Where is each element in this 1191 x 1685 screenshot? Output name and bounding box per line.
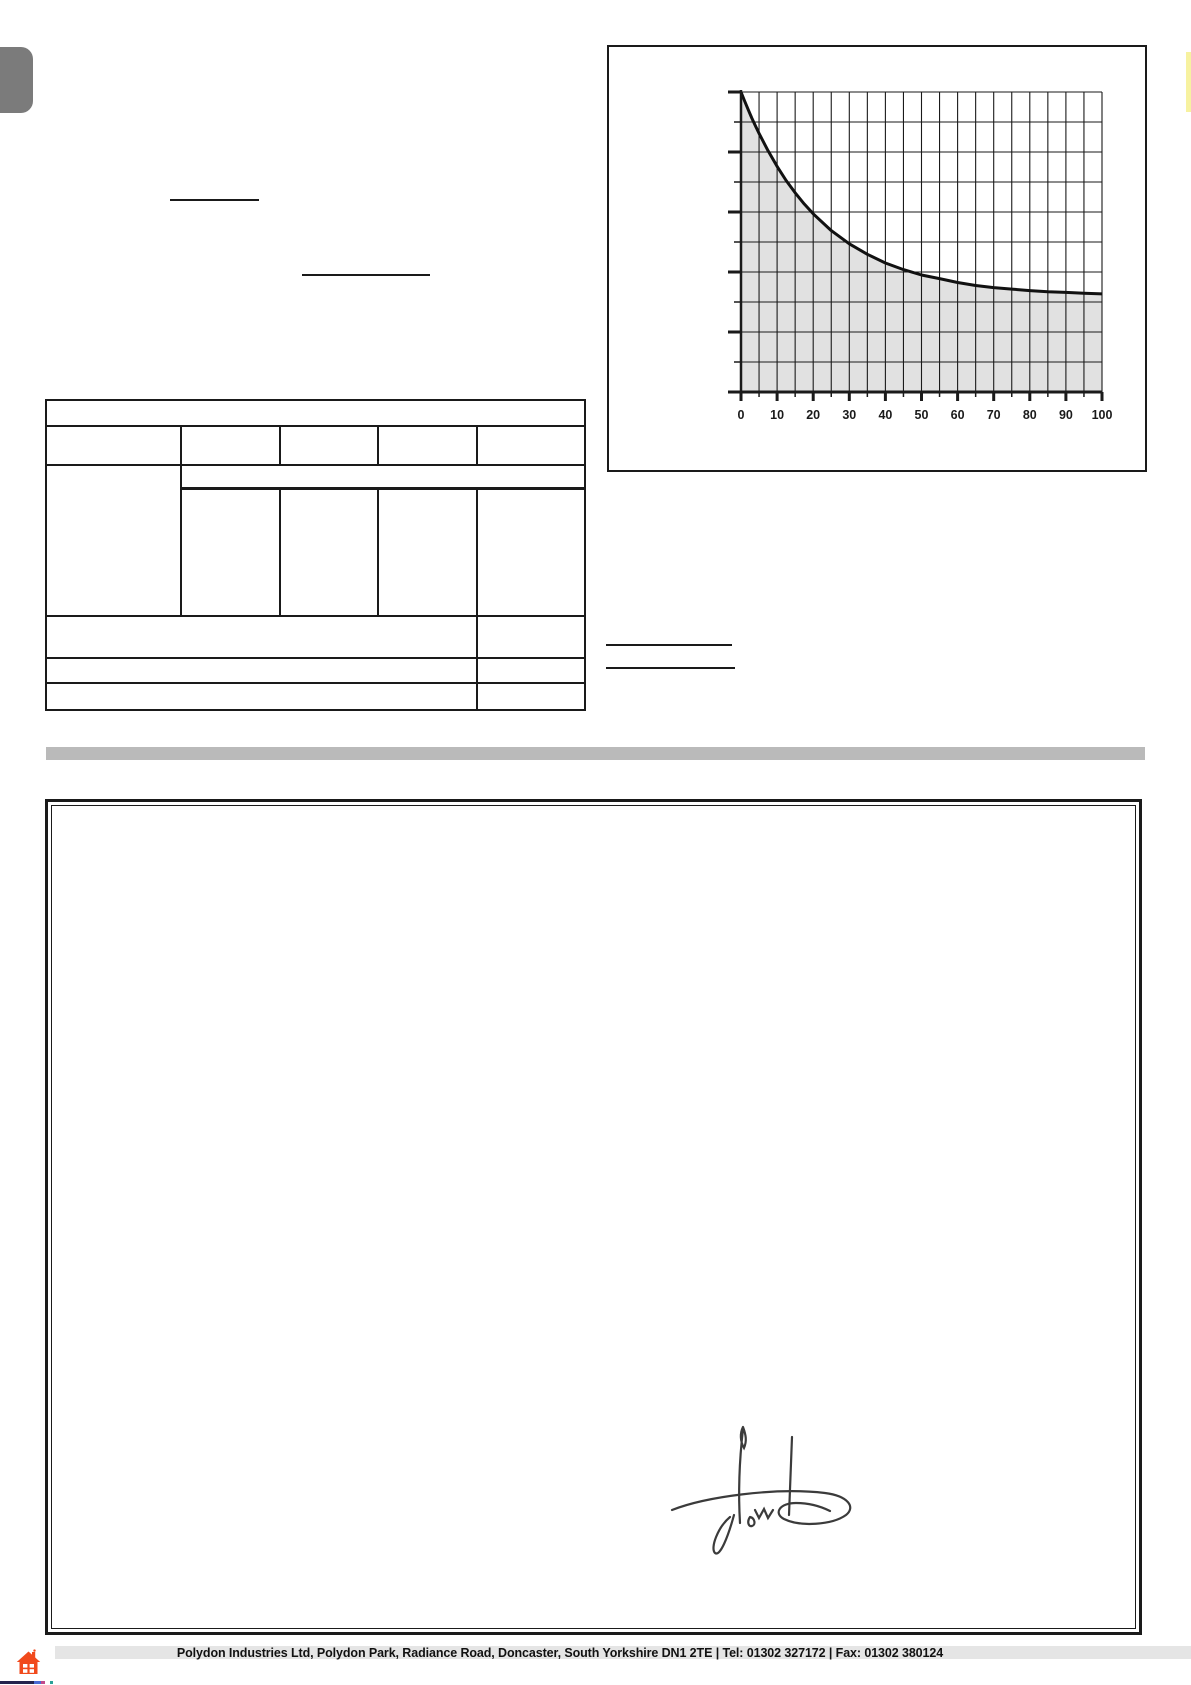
scan-artifact-strip — [0, 1681, 34, 1684]
certificate-box-inner-border — [51, 805, 1136, 1629]
footer-tel-label: Tel: — [722, 1646, 743, 1660]
x-axis-tick-label: 50 — [915, 408, 929, 422]
footer-address: Polydon Industries Ltd, Polydon Park, Ra… — [177, 1646, 712, 1660]
fill-in-line-4 — [606, 667, 735, 669]
scan-artifact-strip — [50, 1681, 53, 1684]
table-grid-line — [377, 425, 379, 464]
signature-scribble — [660, 1415, 870, 1580]
scan-artifact-strip — [34, 1681, 41, 1684]
scan-artifact-strip — [41, 1681, 45, 1684]
decay-chart: 0102030405060708090100 — [609, 47, 1141, 466]
table-grid-line — [476, 425, 478, 464]
footer-tel-number: 01302 327172 — [747, 1646, 826, 1660]
table-grid-line — [180, 487, 584, 490]
footer-separator: | — [829, 1646, 832, 1660]
table-grid-line — [279, 487, 281, 615]
table-grid-line — [279, 425, 281, 464]
chart-panel: 0102030405060708090100 — [607, 45, 1147, 472]
x-axis-tick-label: 10 — [770, 408, 784, 422]
x-axis-tick-label: 100 — [1092, 408, 1113, 422]
footer-fax-label: Fax: — [836, 1646, 861, 1660]
section-divider-bar — [46, 747, 1145, 760]
x-axis-tick-label: 0 — [738, 408, 745, 422]
footer-company-line: Polydon Industries Ltd, Polydon Park, Ra… — [0, 1646, 1120, 1660]
fill-in-line-2 — [302, 274, 430, 276]
table-grid-line — [47, 464, 584, 466]
spec-table — [45, 399, 586, 711]
fill-in-line-1 — [170, 199, 259, 201]
section-side-tab — [0, 47, 33, 113]
x-axis-tick-label: 90 — [1059, 408, 1073, 422]
table-grid-line — [47, 657, 584, 659]
table-grid-line — [180, 425, 182, 615]
x-axis-tick-label: 20 — [806, 408, 820, 422]
x-axis-tick-label: 30 — [842, 408, 856, 422]
table-grid-line — [476, 487, 478, 709]
scan-artifact-yellow-strip — [1186, 52, 1191, 112]
certificate-box — [45, 799, 1142, 1635]
x-axis-tick-label: 80 — [1023, 408, 1037, 422]
footer-fax-number: 01302 380124 — [864, 1646, 943, 1660]
table-grid-line — [47, 682, 584, 684]
fill-in-line-3 — [606, 644, 732, 646]
x-axis-tick-label: 60 — [951, 408, 965, 422]
table-grid-line — [47, 615, 584, 617]
table-grid-line — [377, 487, 379, 615]
table-grid-line — [47, 425, 584, 427]
x-axis-tick-label: 40 — [878, 408, 892, 422]
footer-separator: | — [716, 1646, 719, 1660]
x-axis-tick-label: 70 — [987, 408, 1001, 422]
signature — [660, 1415, 870, 1580]
document-page: 0102030405060708090100 — [0, 0, 1191, 1685]
home-icon — [16, 1649, 42, 1677]
